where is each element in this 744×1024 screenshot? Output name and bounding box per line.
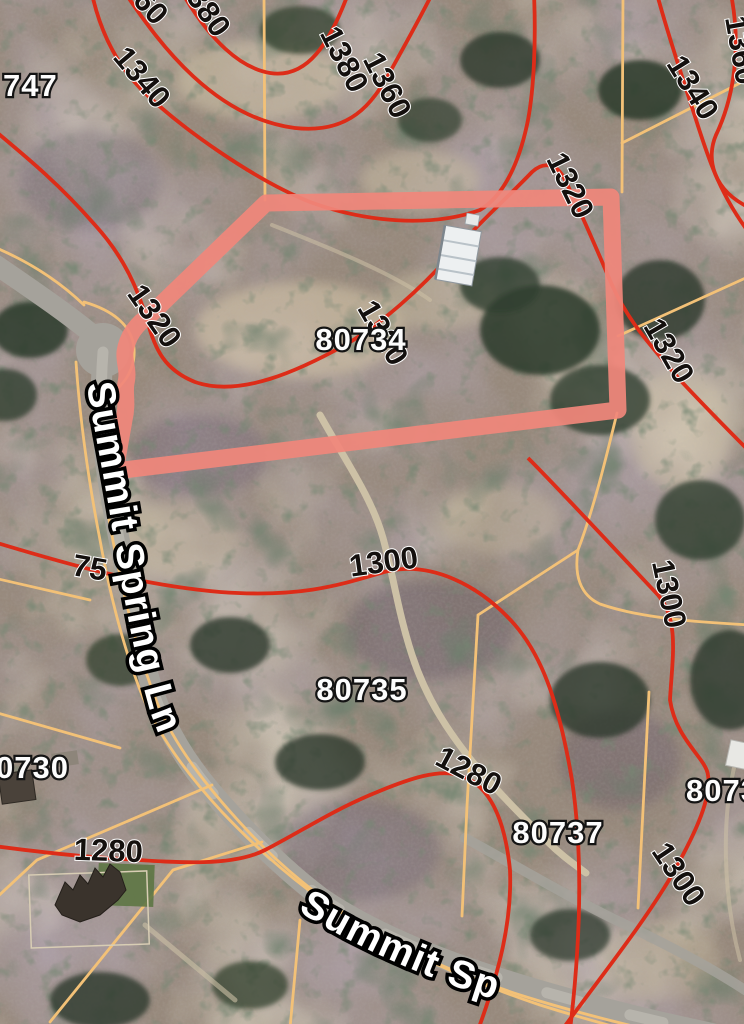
parcel-label: 80737 bbox=[512, 815, 603, 850]
parcel-label: 80735 bbox=[316, 672, 407, 707]
map-canvas: 6038013401380136013601340132013201320132… bbox=[0, 0, 744, 1024]
parcel-line bbox=[622, 0, 623, 192]
parcel-label: 0730 bbox=[0, 750, 69, 785]
parcel-line bbox=[264, 0, 265, 200]
parcel-label: 747 bbox=[3, 68, 58, 103]
parcel-label: 8073 bbox=[686, 773, 744, 808]
parcel-label: 80734 bbox=[315, 322, 406, 357]
map-viewport[interactable]: 6038013401380136013601340132013201320132… bbox=[0, 0, 744, 1024]
contour-label: 1280 bbox=[73, 832, 143, 869]
contour-label: 75 bbox=[70, 547, 110, 587]
shed-building bbox=[465, 213, 480, 226]
